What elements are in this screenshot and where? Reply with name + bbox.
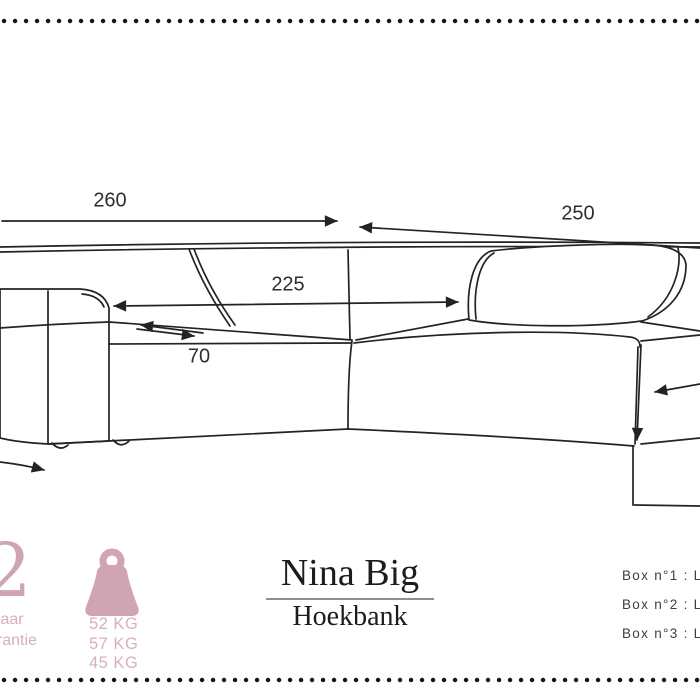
dim-225-line	[114, 302, 458, 306]
weight-value-1: 52 KG	[89, 615, 138, 635]
weight-icon	[85, 552, 138, 616]
chaise-front-top-edge	[354, 332, 640, 347]
seat-front-top-edge	[109, 343, 351, 344]
weight-value-3: 45 KG	[89, 654, 138, 674]
product-name: Nina Big	[266, 551, 434, 596]
box-line-2: Box n°2 : L 1	[622, 597, 700, 612]
product-title-block: Nina Big Hoekbank	[266, 551, 434, 631]
box-line-3: Box n°3 : L 1	[622, 626, 700, 641]
dim-250-line	[360, 227, 700, 248]
dim-70-label: 70	[188, 346, 210, 369]
seat-back-junction	[109, 322, 352, 340]
product-subtitle: Hoekbank	[266, 602, 434, 631]
warranty-years: 2	[0, 534, 58, 608]
rightface-bottom-edge	[641, 438, 700, 444]
rightface-top-edge	[641, 335, 700, 341]
armrest-outline	[0, 289, 109, 444]
weight-value-2: 57 KG	[89, 635, 138, 655]
chaise-base-panel	[633, 447, 700, 506]
dim-250-label: 250	[561, 203, 594, 226]
seat-crevice	[348, 341, 352, 429]
pointer-bottom-left-arrow	[0, 462, 44, 470]
title-divider	[266, 598, 434, 600]
warranty-label-line2: garantie	[0, 630, 58, 651]
warranty-label-line1: Jaar	[0, 609, 58, 630]
chaise-bottom-edge	[348, 429, 634, 446]
back-seam-left-b	[194, 249, 235, 325]
back-seam-middle	[348, 250, 350, 339]
rightface-back-junction	[641, 322, 700, 331]
spec-sheet: 260 250 225 70 2 Jaar garantie 52 KG 57 …	[0, 0, 700, 700]
warranty-label: Jaar garantie	[0, 609, 58, 651]
dim-225-label: 225	[271, 274, 304, 297]
dim-260-label: 260	[93, 190, 126, 213]
back-seam-left-a	[189, 249, 230, 326]
pointer-right-arrow	[655, 384, 700, 392]
weight-values: 52 KG 57 KG 45 KG	[89, 615, 138, 674]
box-line-1: Box n°1 : L 1	[622, 568, 700, 583]
